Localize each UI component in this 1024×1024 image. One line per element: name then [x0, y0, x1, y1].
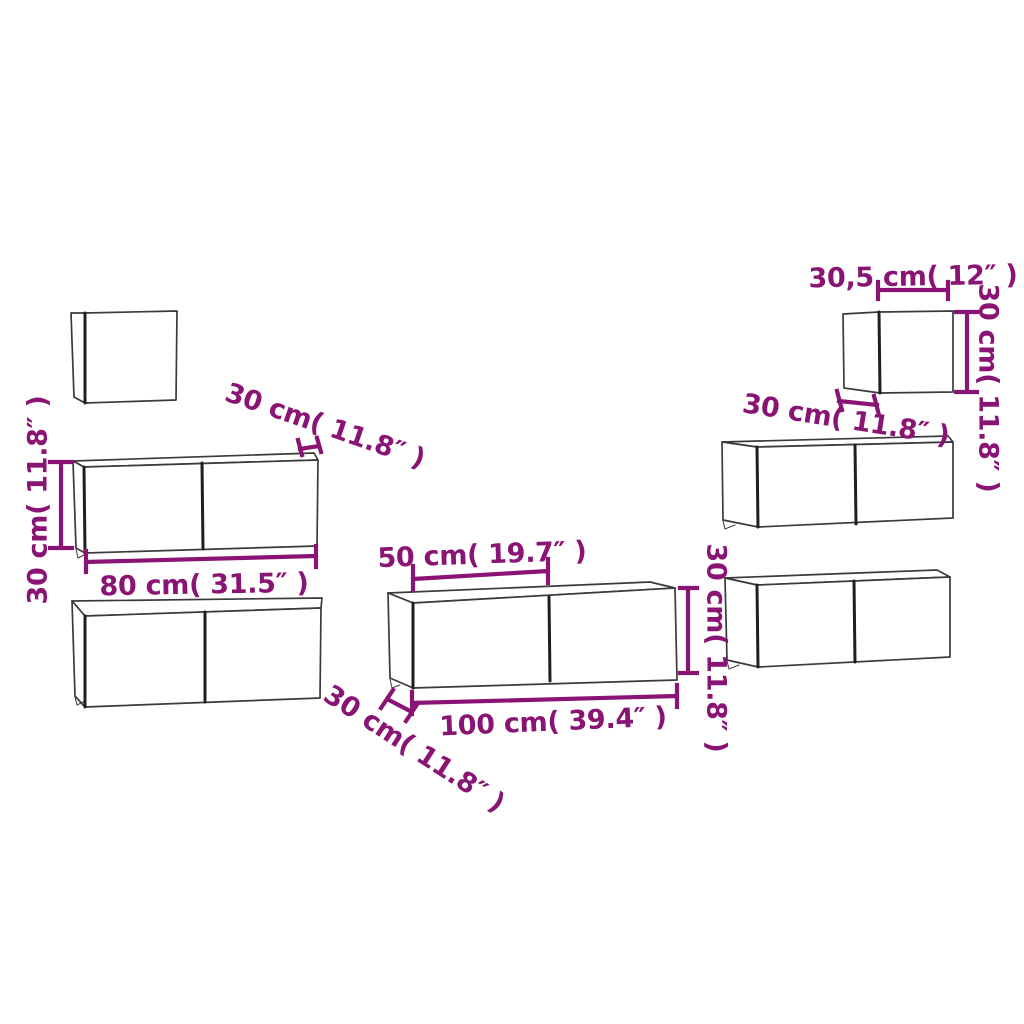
cabinet-small-top-left	[71, 311, 177, 403]
dimension-diagram: 30 cm( 11.8″ ) 30 cm( 11.8″ ) 80 cm( 31.…	[0, 0, 1024, 1024]
cabinet-100cm-center	[388, 582, 677, 688]
door-fold-line	[879, 312, 880, 393]
dim-label-center-width: 100 cm( 39.4″ )	[439, 702, 668, 743]
door-fold-line	[757, 447, 758, 527]
cabinet-front-door	[85, 311, 177, 403]
door-divider-line	[202, 463, 203, 549]
dim-label-center-half-width: 50 cm( 19.7″ )	[377, 536, 587, 574]
door-fold-line	[84, 467, 85, 553]
cabinet-side-panel	[722, 442, 758, 527]
door-divider-line	[549, 597, 550, 681]
cabinet-side-panel	[388, 593, 413, 688]
door-divider-line	[855, 445, 856, 524]
door-fold-line	[757, 585, 758, 667]
height-bracket-center-cabinet	[680, 588, 697, 673]
cabinet-front-doors	[85, 608, 321, 707]
cabinet-80cm-lower	[72, 598, 322, 707]
cabinet-side-panel	[843, 312, 880, 393]
cabinet-80cm-upper	[73, 453, 318, 558]
cabinet-small-top-right	[843, 311, 953, 393]
door-divider-line	[854, 581, 855, 662]
dim-label-left-height: 30 cm( 11.8″ )	[23, 395, 54, 604]
dim-label-center-height: 30 cm( 11.8″ )	[701, 543, 732, 752]
dim-label-left-width: 80 cm( 31.5″ )	[99, 568, 309, 603]
dim-label-small-height: 30 cm( 11.8″ )	[973, 283, 1004, 492]
cabinet-side-panel	[72, 601, 85, 707]
cabinet-front-doors	[413, 588, 677, 688]
diagram-canvas: 30 cm( 11.8″ ) 30 cm( 11.8″ ) 80 cm( 31.…	[0, 0, 1024, 1024]
cabinet-side-panel	[71, 313, 85, 403]
cabinet-front-door	[879, 311, 953, 393]
